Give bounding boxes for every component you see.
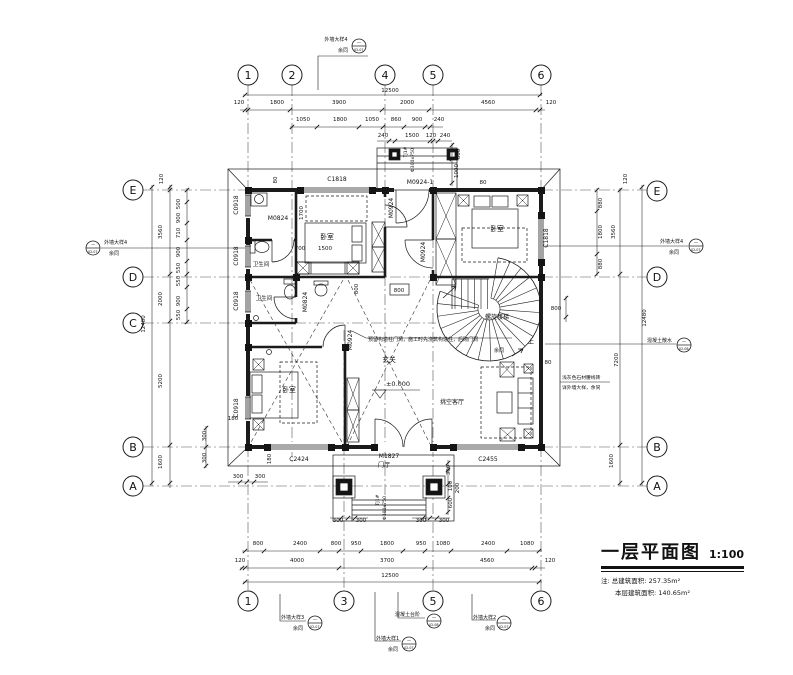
- window-door-label: M0924-1: [407, 179, 434, 186]
- callout-label: 外墙大样4: [104, 239, 127, 246]
- grid-bubble: 5: [423, 65, 443, 85]
- dimension-label: 1800: [380, 541, 394, 547]
- dimension-label: 1800: [333, 117, 347, 123]
- dimension-label: 1600: [609, 454, 615, 468]
- grid-bubble: 5: [423, 591, 443, 611]
- room-label: 卧室: [282, 385, 296, 394]
- dimension-label: 950: [416, 541, 427, 547]
- dimension-label: 880: [598, 197, 604, 208]
- dimension-label: 120: [235, 558, 246, 564]
- grid-bubble: 6: [531, 65, 551, 85]
- dimension-label: 300: [333, 518, 344, 524]
- grid-bubble-label: 1: [245, 595, 252, 608]
- dimension-label: 900: [176, 246, 182, 257]
- room-label: 卫生间: [253, 260, 270, 268]
- grid-bubble: 3: [334, 591, 354, 611]
- dimension-label: 300: [255, 474, 266, 480]
- callout-label: 混凝土散水: [647, 337, 672, 344]
- dimension-label: Φ300x750: [382, 496, 388, 520]
- grid-bubble-label: D: [129, 271, 137, 284]
- grid-bubble: A: [123, 476, 143, 496]
- grid-bubble-label: A: [653, 480, 661, 493]
- callout-label: 外墙大样3: [281, 614, 304, 621]
- detail-callout: 混凝土散水—JD-08: [647, 337, 691, 352]
- grid-bubble-label: 5: [430, 595, 437, 608]
- dimension-label: 300: [356, 518, 367, 524]
- dimension-label: 550: [176, 275, 182, 286]
- dimension-label: 5200: [158, 374, 164, 388]
- dimension-label: 1080: [520, 541, 534, 547]
- grid-bubble: 1: [238, 591, 258, 611]
- total-area-value: 257.35m²: [649, 577, 681, 585]
- dimension-label: TJ1#: [403, 146, 409, 158]
- material-note: 详外墙大样，余同: [562, 384, 601, 391]
- window-door-label: M0924: [420, 242, 427, 263]
- dimension-label: 1800: [598, 225, 604, 239]
- title-rule-thin: [601, 571, 744, 572]
- callout-label: 外墙大样1: [376, 635, 399, 642]
- dimension-label: 4000: [290, 558, 304, 564]
- dimension-label: 550: [176, 262, 182, 273]
- dimension-label: 3700: [380, 558, 394, 564]
- dimension-label: 120: [545, 558, 556, 564]
- dimension-label: 3560: [611, 225, 617, 239]
- dimension-label: 900: [176, 212, 182, 223]
- grid-bubble: D: [647, 267, 667, 287]
- callout-sheet-code: JD-07: [403, 646, 413, 650]
- dimension-label: 12500: [381, 573, 399, 579]
- construction-note-sub: 余同: [494, 347, 504, 354]
- room-label: 卫生间: [256, 294, 273, 302]
- window-door-label: M0824: [302, 292, 309, 313]
- title-rule-thick: [601, 566, 744, 569]
- grid-bubble-label: B: [129, 441, 137, 454]
- room-label: 玄关: [382, 355, 396, 364]
- dimension-label: 800: [331, 541, 342, 547]
- dimension-label: 80: [480, 180, 487, 186]
- dimension-label: Φ300x750: [410, 148, 416, 172]
- grid-bubble-label: 6: [538, 69, 545, 82]
- grid-bubble: C: [123, 313, 143, 333]
- callout-sheet-code: JD-07: [690, 248, 700, 252]
- callout-sheet-code: JD-07: [87, 250, 97, 254]
- grid-bubble-label: C: [129, 317, 137, 330]
- window-door-label: C0918: [233, 398, 240, 418]
- grid-bubble-label: 1: [245, 69, 252, 82]
- grid-bubble: 2: [282, 65, 302, 85]
- window-door-label: C0918: [233, 291, 240, 311]
- grid-bubble: D: [123, 267, 143, 287]
- dimension-label: 710: [176, 227, 182, 238]
- dimension-label: 12480: [642, 309, 648, 327]
- dimension-label: 300: [233, 474, 244, 480]
- detail-callout: 外墙大样2余同—JD-07: [473, 614, 511, 632]
- window-door-label: M0924: [347, 330, 354, 351]
- dimension-label: 2000: [158, 292, 164, 306]
- room-label: ±0.000: [386, 380, 410, 388]
- window-door-label: C0918: [233, 195, 240, 215]
- grid-bubble-label: 3: [341, 595, 348, 608]
- dimension-label: 240: [434, 117, 445, 123]
- dimension-label: 800: [394, 288, 405, 294]
- leader-lines: [101, 56, 688, 641]
- dimension-label: 2000: [400, 100, 414, 106]
- callout-sublabel: 余同: [293, 625, 303, 632]
- window-door-label: M0924: [388, 198, 395, 219]
- total-area-label: 总建筑面积:: [612, 577, 647, 585]
- grid-bubble: 4: [375, 65, 395, 85]
- room-label: 螺旋楼梯: [485, 313, 509, 321]
- floor-plan-sheet: 124561356EDCBAEDBA 125001201800390020004…: [0, 0, 793, 675]
- room-label: 挑空客厅: [440, 398, 464, 406]
- dimension-label: 800: [253, 541, 264, 547]
- room-label: 门厅: [378, 461, 390, 469]
- callout-detail-number: —: [432, 615, 436, 620]
- floor-area-label: 本层建筑面积:: [615, 589, 656, 597]
- dimension-label: 3900: [332, 100, 346, 106]
- grid-bubble-label: A: [129, 480, 137, 493]
- dimension-label: 1500: [405, 133, 419, 139]
- room-label: 卧室: [320, 232, 334, 241]
- dimension-label: 900: [412, 117, 423, 123]
- window-door-label: C1818: [327, 176, 347, 183]
- grid-bubble: B: [647, 437, 667, 457]
- detail-callout: 混凝土台阶—JD-08: [395, 611, 441, 628]
- grid-bubble: B: [123, 437, 143, 457]
- callout-label: 混凝土台阶: [395, 611, 420, 618]
- room-label: 卧室: [490, 224, 504, 233]
- window-door-label: M1827: [379, 453, 400, 460]
- dimension-label: 600: [456, 148, 462, 159]
- dimension-label: 3560: [158, 225, 164, 239]
- entrance-steps: [333, 455, 454, 521]
- dimension-label: 200: [455, 482, 461, 493]
- dimension-label: 300: [416, 518, 427, 524]
- callout-sublabel: 余同: [669, 249, 679, 256]
- drawing-title: 一层平面图: [601, 538, 701, 564]
- dimension-label: 860: [391, 117, 402, 123]
- callout-sublabel: 余同: [485, 625, 495, 632]
- material-note: 浅灰色石材腰线砖: [562, 374, 601, 381]
- floor-area-note: 本层建筑面积: 140.65m²: [615, 587, 791, 597]
- dimension-label: 550: [176, 309, 182, 320]
- construction-note: 预留构造柱门洞，施工时先浇筑构造柱，后砌门洞: [368, 336, 478, 343]
- total-area-note: 注: 总建筑面积: 257.35m²: [601, 575, 791, 585]
- detail-callout: 外墙大样4余同—JD-07: [660, 238, 703, 256]
- dimension-label: 1050: [365, 117, 379, 123]
- dimension-label: 7200: [614, 353, 620, 367]
- dimension-label: 300: [446, 464, 452, 475]
- callout-sheet-code: JD-07: [309, 625, 319, 629]
- detail-callout: 外墙大样4余同—JD-07: [324, 36, 366, 54]
- grid-bubble: A: [647, 476, 667, 496]
- double-height-cross: [250, 280, 430, 444]
- callout-detail-number: —: [682, 339, 686, 344]
- window-door-label: C0918: [233, 246, 240, 266]
- window-door-label: M0824: [268, 215, 289, 222]
- dimension-label: 800: [354, 283, 360, 294]
- dimension-label: 1800: [270, 100, 284, 106]
- callout-detail-number: —: [407, 638, 411, 643]
- grid-bubble: 6: [531, 591, 551, 611]
- window-door-label: C2424: [289, 456, 309, 463]
- dimension-label: 1000: [454, 164, 460, 178]
- dimension-label: 700: [295, 246, 306, 252]
- dimension-label: 120: [426, 133, 437, 139]
- dimension-label: 120: [623, 173, 629, 184]
- grid-bubble-label: E: [654, 185, 661, 198]
- dimension-label: 1700: [299, 206, 305, 220]
- callout-sublabel: 余同: [109, 250, 119, 257]
- grid-bubble-label: 4: [382, 69, 389, 82]
- dimension-label: 880: [598, 258, 604, 269]
- dimension-label: 12500: [381, 88, 399, 94]
- floor-area-value: 140.65m²: [658, 589, 690, 597]
- dimension-label: 120: [546, 100, 557, 106]
- callout-sublabel: 余同: [388, 646, 398, 653]
- dimension-label: 2400: [481, 541, 495, 547]
- dimension-label: 800: [551, 306, 562, 312]
- window-door-label: C1818: [543, 228, 550, 248]
- callout-detail-number: —: [502, 617, 506, 622]
- dimension-label: 2400: [293, 541, 307, 547]
- drawing-scale: 1:100: [709, 548, 744, 561]
- callout-label: 外墙大样4: [324, 36, 347, 43]
- grid-bubble: E: [123, 180, 143, 200]
- grid-bubble-label: 6: [538, 595, 545, 608]
- grid-bubble: 1: [238, 65, 258, 85]
- dimension-label: TJ1#: [375, 494, 381, 506]
- grid-bubble-label: E: [130, 184, 137, 197]
- dimension-label: 240: [378, 133, 389, 139]
- dimension-label: 300: [439, 518, 450, 524]
- dimension-label: 500: [176, 198, 182, 209]
- dimension-label: 300: [202, 452, 208, 463]
- grid-bubble: E: [647, 181, 667, 201]
- dimension-label: 600: [448, 497, 454, 508]
- dimension-label: 12480: [141, 315, 147, 333]
- title-block: 一层平面图 1:100 注: 总建筑面积: 257.35m² 本层建筑面积: 1…: [601, 538, 791, 597]
- dimension-label: 1050: [296, 117, 310, 123]
- detail-callout: 外墙大样1余同—JD-07: [376, 635, 416, 653]
- detail-callout: 外墙大样3余同—JD-07: [281, 614, 322, 632]
- callout-sublabel: 余同: [338, 47, 348, 54]
- dimension-label: 100: [448, 480, 454, 491]
- room-label: 上: [528, 338, 534, 346]
- grid-bubble-label: D: [653, 271, 661, 284]
- note-prefix: 注:: [601, 577, 610, 585]
- dimension-label: 950: [351, 541, 362, 547]
- grid-bubble-label: B: [653, 441, 661, 454]
- dimension-label: 120: [234, 100, 245, 106]
- grid-bubble-label: 5: [430, 69, 437, 82]
- spiral-staircase: [437, 258, 541, 361]
- callout-detail-number: —: [91, 242, 95, 247]
- callout-label: 外墙大样4: [660, 238, 683, 245]
- callout-label: 外墙大样2: [473, 614, 496, 621]
- callout-sheet-code: JD-08: [428, 623, 438, 627]
- dimension-label: 1500: [318, 246, 332, 252]
- dimension-label: 1600: [158, 455, 164, 469]
- grid-bubble-label: 2: [289, 69, 296, 82]
- dimension-label: 80: [545, 360, 552, 366]
- callout-sheet-code: JD-08: [678, 347, 688, 351]
- dimension-label: 300: [202, 430, 208, 441]
- callout-detail-number: —: [694, 240, 698, 245]
- dimension-label: 900: [176, 295, 182, 306]
- dimension-label: 4560: [480, 558, 494, 564]
- dimension-label: 240: [440, 133, 451, 139]
- callout-sheet-code: JD-07: [498, 625, 508, 629]
- dimension-label: 120: [159, 173, 165, 184]
- dimension-label: 1080: [436, 541, 450, 547]
- dimension-label: 80: [273, 176, 279, 183]
- callout-detail-number: —: [313, 617, 317, 622]
- callout-detail-number: —: [357, 40, 361, 45]
- dimension-label: 4560: [481, 100, 495, 106]
- dimension-label: 180: [267, 453, 273, 464]
- window-door-label: C2455: [478, 456, 498, 463]
- callout-sheet-code: JD-07: [353, 48, 363, 52]
